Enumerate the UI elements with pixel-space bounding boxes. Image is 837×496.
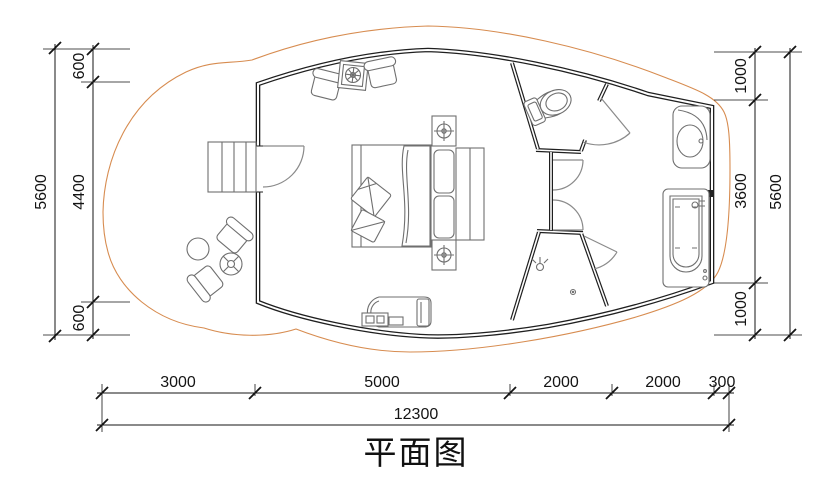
dim-left-seg: 600 (71, 305, 88, 332)
parasol-table (220, 253, 242, 275)
bathtub (663, 189, 709, 287)
floor-plan-drawing: 5600 600 4400 600 1000 3600 1000 5600 30… (0, 0, 837, 496)
floor-plan-page: 5600 600 4400 600 1000 3600 1000 5600 30… (0, 0, 837, 496)
washbasin (673, 106, 710, 168)
dim-bottom-seg: 2000 (543, 374, 579, 391)
dim-left-seg: 4400 (71, 174, 88, 210)
drawing-title: 平面图 (364, 434, 469, 471)
armchair (213, 215, 255, 256)
dim-bottom-total: 12300 (394, 406, 439, 423)
bench-cushion (434, 196, 454, 238)
dim-bottom-seg: 2000 (645, 374, 681, 391)
dim-right-seg: 1000 (733, 58, 750, 94)
dim-right-seg: 3600 (733, 173, 750, 209)
dim-right-total: 5600 (768, 174, 785, 210)
dim-right-seg: 1000 (733, 291, 750, 327)
nightstand-lamp (432, 240, 456, 270)
dim-bottom-seg: 5000 (364, 374, 400, 391)
nightstand-lamp (432, 116, 456, 146)
round-table (187, 238, 209, 260)
dim-bottom-seg: 3000 (160, 374, 196, 391)
dim-left-total: 5600 (33, 174, 50, 210)
double-bed (351, 145, 431, 247)
dim-bottom-seg: 300 (709, 374, 736, 391)
dim-left-seg: 600 (71, 53, 88, 80)
blanket (402, 146, 430, 246)
chaise-lounge (362, 297, 431, 327)
bench-cushion (434, 150, 454, 193)
stairs (208, 142, 256, 192)
armchair (185, 262, 226, 304)
